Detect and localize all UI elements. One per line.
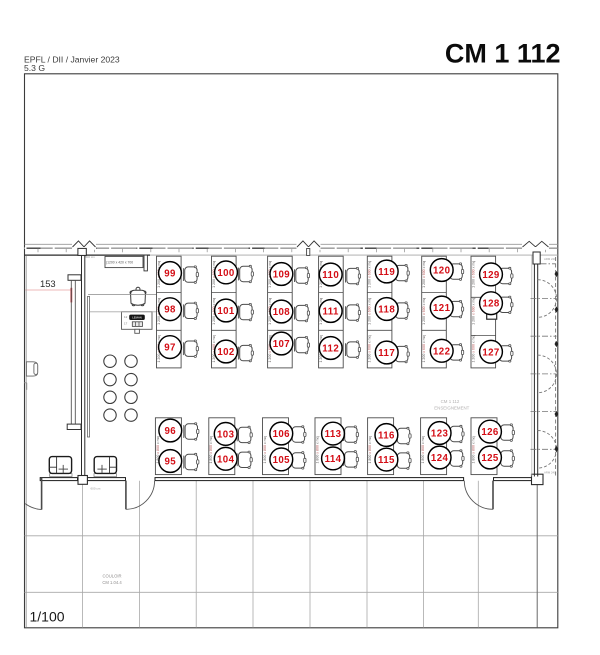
svg-text:1 200 x 600 x mq: 1 200 x 600 x mq bbox=[471, 335, 475, 362]
svg-text:109: 109 bbox=[273, 270, 291, 281]
svg-text:111: 111 bbox=[323, 307, 340, 318]
svg-text:103: 103 bbox=[217, 429, 235, 440]
svg-text:113: 113 bbox=[325, 429, 342, 440]
svg-text:1 200 x 600 x mq: 1 200 x 600 x mq bbox=[422, 335, 426, 362]
svg-text:1 200 x 600 x mq: 1 200 x 600 x mq bbox=[422, 261, 426, 288]
svg-text:1 800 x 800 x mq: 1 800 x 800 x mq bbox=[263, 436, 267, 463]
svg-text:CM 1.04.4: CM 1.04.4 bbox=[102, 580, 122, 585]
svg-text:1 800 x 800 x mq: 1 800 x 800 x mq bbox=[315, 436, 319, 463]
svg-text:128: 128 bbox=[482, 299, 500, 310]
svg-text:105: 105 bbox=[273, 455, 291, 466]
svg-text:97: 97 bbox=[164, 343, 176, 354]
svg-text:CM 1 112: CM 1 112 bbox=[445, 39, 561, 69]
svg-text:101: 101 bbox=[217, 306, 235, 317]
svg-text:96: 96 bbox=[165, 426, 177, 437]
svg-text:108: 108 bbox=[273, 307, 291, 318]
svg-text:ENSEIGNEMENT: ENSEIGNEMENT bbox=[434, 406, 469, 411]
svg-text:104: 104 bbox=[217, 454, 235, 465]
svg-text:120: 120 bbox=[433, 266, 450, 277]
svg-text:124: 124 bbox=[431, 453, 449, 464]
svg-text:98: 98 bbox=[164, 305, 176, 316]
svg-text:CM 1 112: CM 1 112 bbox=[441, 399, 460, 404]
svg-text:5.3 G: 5.3 G bbox=[24, 63, 45, 73]
svg-text:1 200 x 600 x mq: 1 200 x 600 x mq bbox=[368, 298, 372, 325]
svg-text:100: 100 bbox=[217, 268, 234, 279]
svg-text:102: 102 bbox=[217, 347, 234, 358]
svg-text:12: 12 bbox=[124, 315, 128, 319]
svg-text:1 200 x 600 x mq: 1 200 x 600 x mq bbox=[471, 298, 475, 325]
svg-text:116: 116 bbox=[378, 431, 395, 442]
svg-text:1 800 x 800 x mq: 1 800 x 800 x mq bbox=[471, 436, 475, 463]
svg-text:1 800 x 800 x mq: 1 800 x 800 x mq bbox=[209, 436, 213, 463]
svg-text:112: 112 bbox=[322, 344, 339, 355]
svg-text:1 200 x 600 x mq: 1 200 x 600 x mq bbox=[471, 261, 475, 288]
svg-text:99: 99 bbox=[164, 269, 176, 280]
svg-text:119: 119 bbox=[378, 267, 395, 278]
svg-text:125: 125 bbox=[481, 453, 499, 464]
svg-text:600 cm: 600 cm bbox=[91, 486, 101, 490]
svg-text:ARM 240: ARM 240 bbox=[544, 257, 556, 261]
svg-text:107: 107 bbox=[273, 339, 290, 350]
svg-text:1 800 x 800 x mq: 1 800 x 800 x mq bbox=[421, 436, 425, 463]
svg-text:17: 17 bbox=[124, 322, 128, 326]
svg-text:126: 126 bbox=[481, 427, 499, 438]
svg-text:118: 118 bbox=[378, 305, 395, 316]
svg-text:COULOIR: COULOIR bbox=[102, 574, 121, 579]
svg-text:1 200 x 600 x mq: 1 200 x 600 x mq bbox=[368, 261, 372, 288]
svg-text:(1200 x 420 x 700: (1200 x 420 x 700 bbox=[106, 261, 133, 265]
svg-text:123: 123 bbox=[431, 429, 449, 440]
svg-text:129: 129 bbox=[482, 270, 500, 281]
svg-text:110: 110 bbox=[322, 270, 339, 281]
svg-text:121: 121 bbox=[433, 303, 451, 314]
svg-text:106: 106 bbox=[273, 429, 291, 440]
svg-text:LEMAN: LEMAN bbox=[132, 316, 142, 320]
svg-text:95: 95 bbox=[165, 457, 177, 468]
svg-text:127: 127 bbox=[482, 347, 499, 358]
svg-text:122: 122 bbox=[433, 346, 450, 357]
svg-text:114: 114 bbox=[325, 454, 342, 465]
svg-text:1/100: 1/100 bbox=[30, 608, 65, 624]
svg-text:1 800 x 800 x mq: 1 800 x 800 x mq bbox=[368, 436, 372, 463]
svg-text:153: 153 bbox=[40, 278, 56, 289]
svg-text:115: 115 bbox=[378, 455, 395, 466]
svg-text:1 200 x 600 x mq: 1 200 x 600 x mq bbox=[368, 335, 372, 362]
svg-text:117: 117 bbox=[378, 348, 395, 359]
svg-text:1 200 x 600 x mq: 1 200 x 600 x mq bbox=[422, 298, 426, 325]
svg-text:ARM 240: ARM 240 bbox=[544, 470, 556, 474]
